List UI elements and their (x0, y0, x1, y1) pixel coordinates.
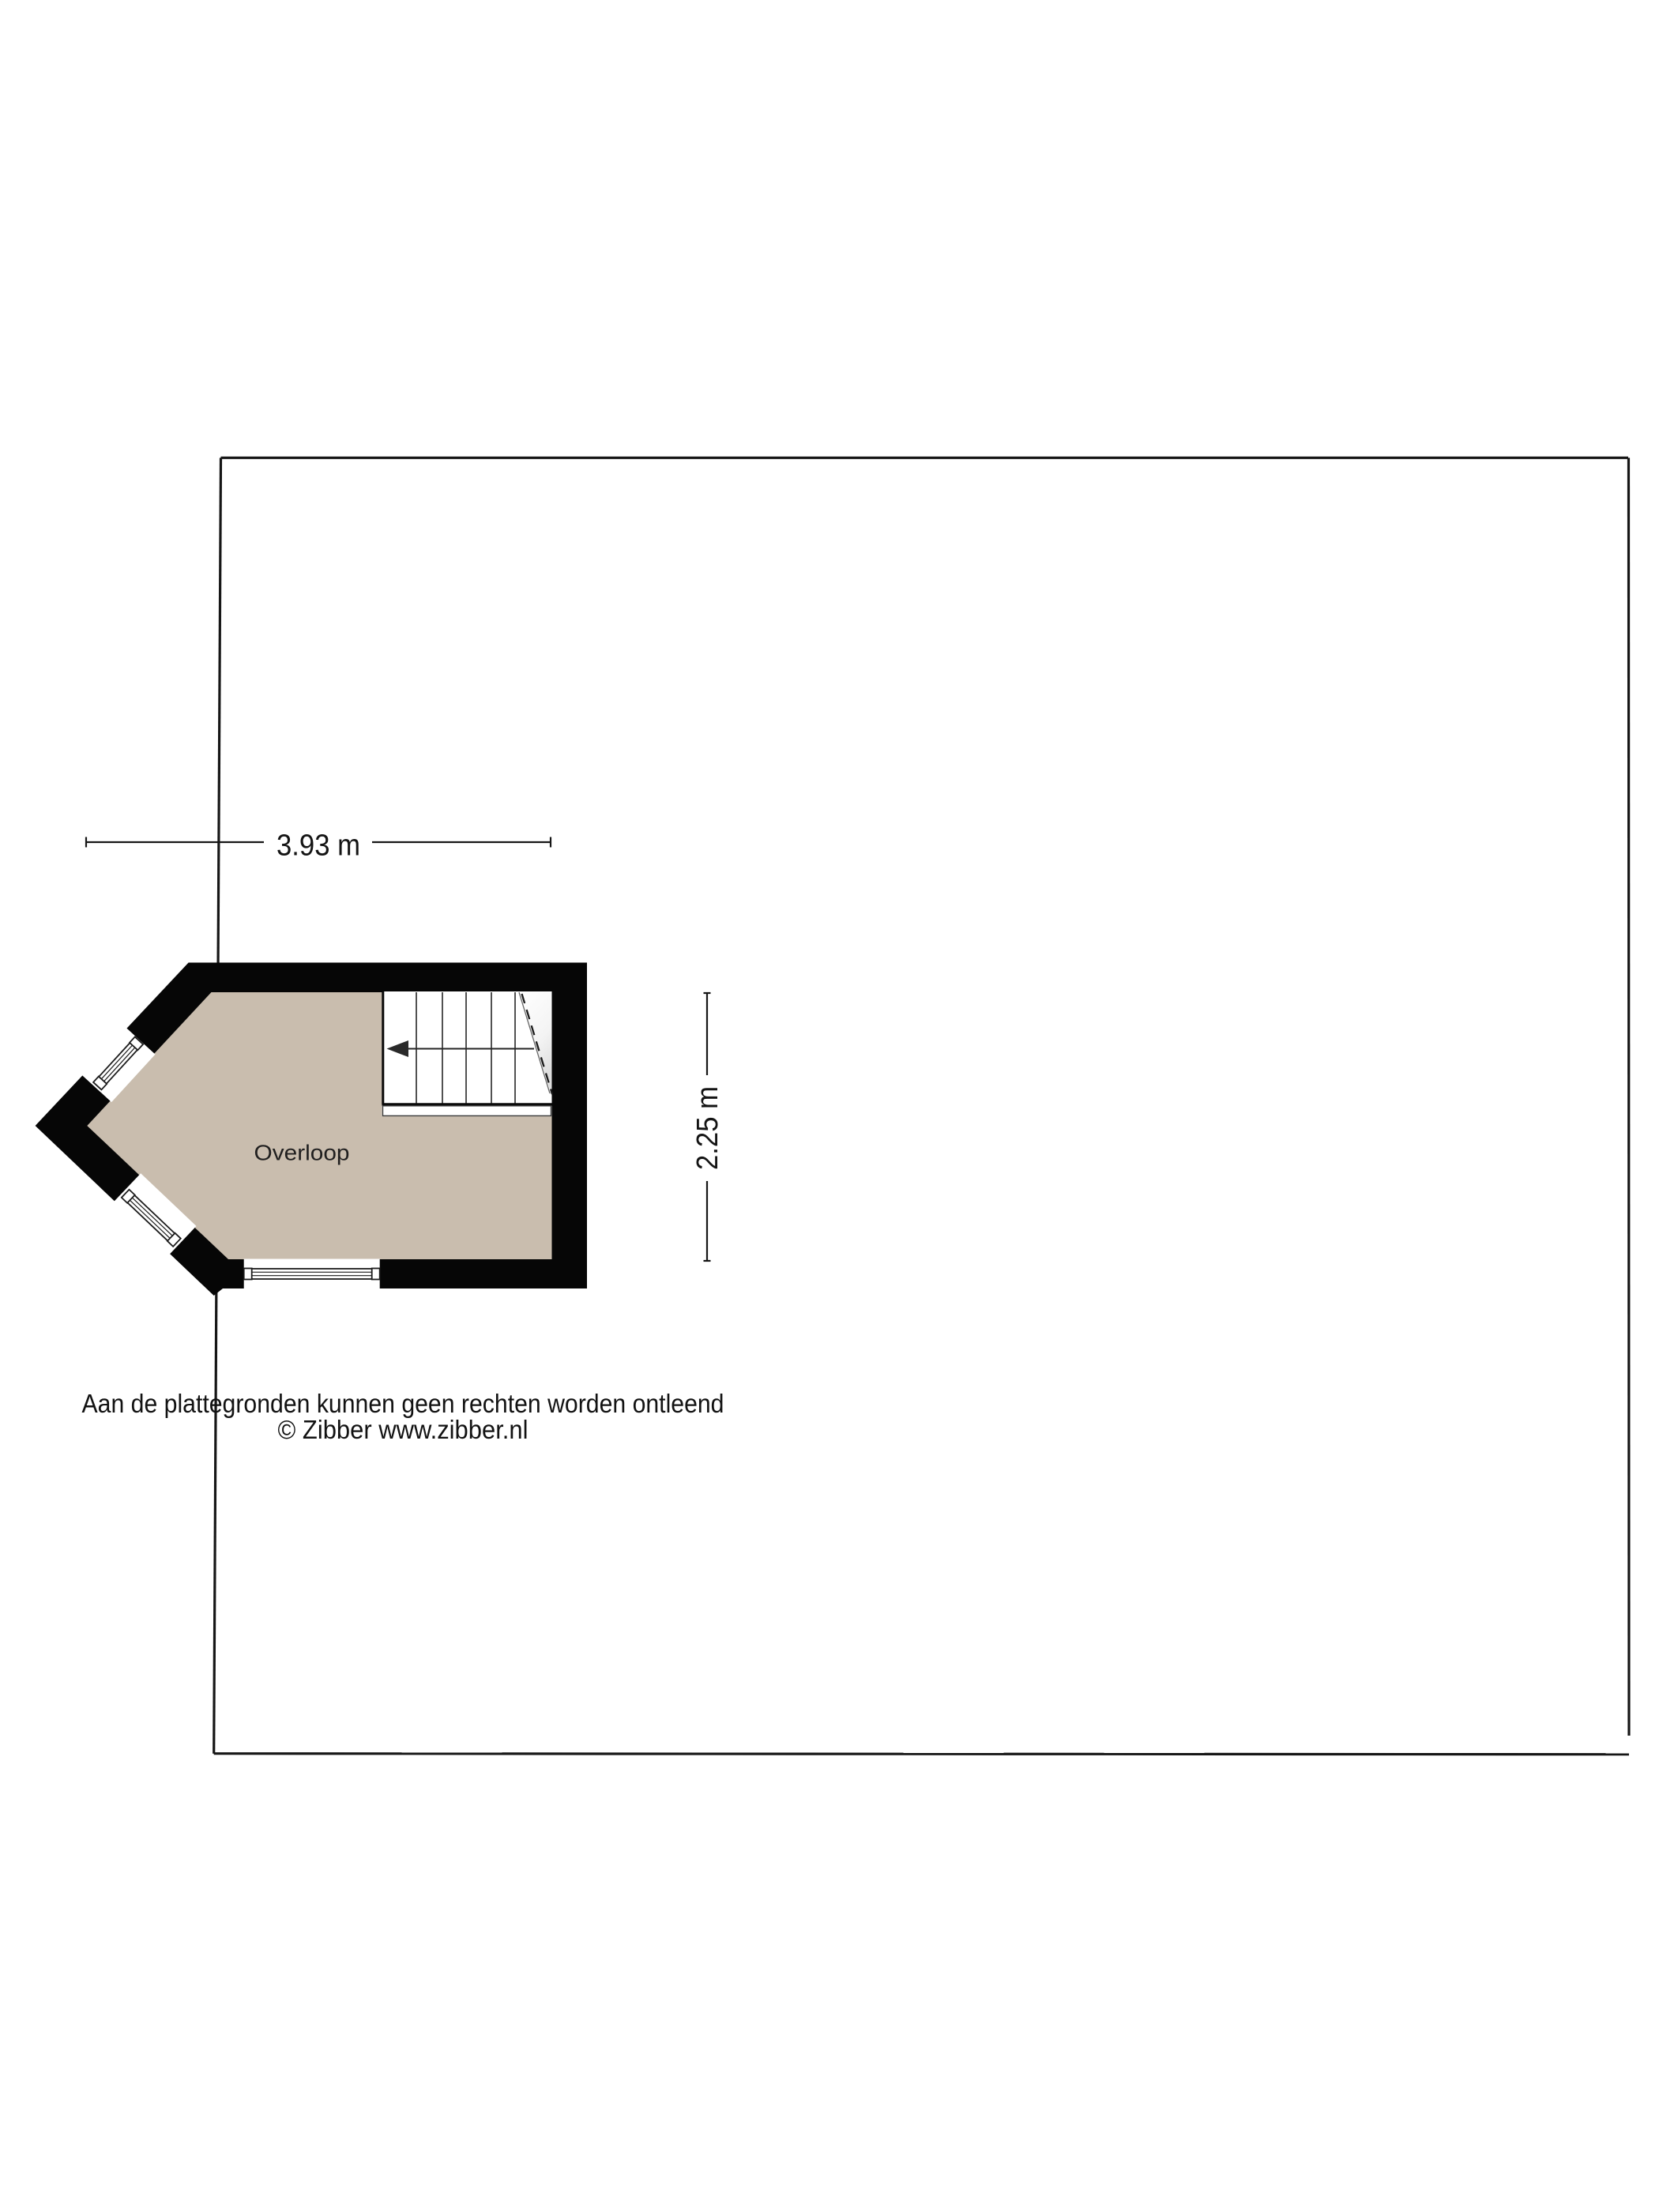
svg-text:2.25 m: 2.25 m (691, 1086, 724, 1170)
svg-text:Overloop: Overloop (254, 1141, 350, 1165)
svg-text:© Zibber www.zibber.nl: © Zibber www.zibber.nl (278, 1415, 529, 1444)
svg-text:Aan de plattegronden kunnen ge: Aan de plattegronden kunnen geen rechten… (82, 1389, 724, 1418)
svg-text:3.93 m: 3.93 m (276, 829, 360, 863)
